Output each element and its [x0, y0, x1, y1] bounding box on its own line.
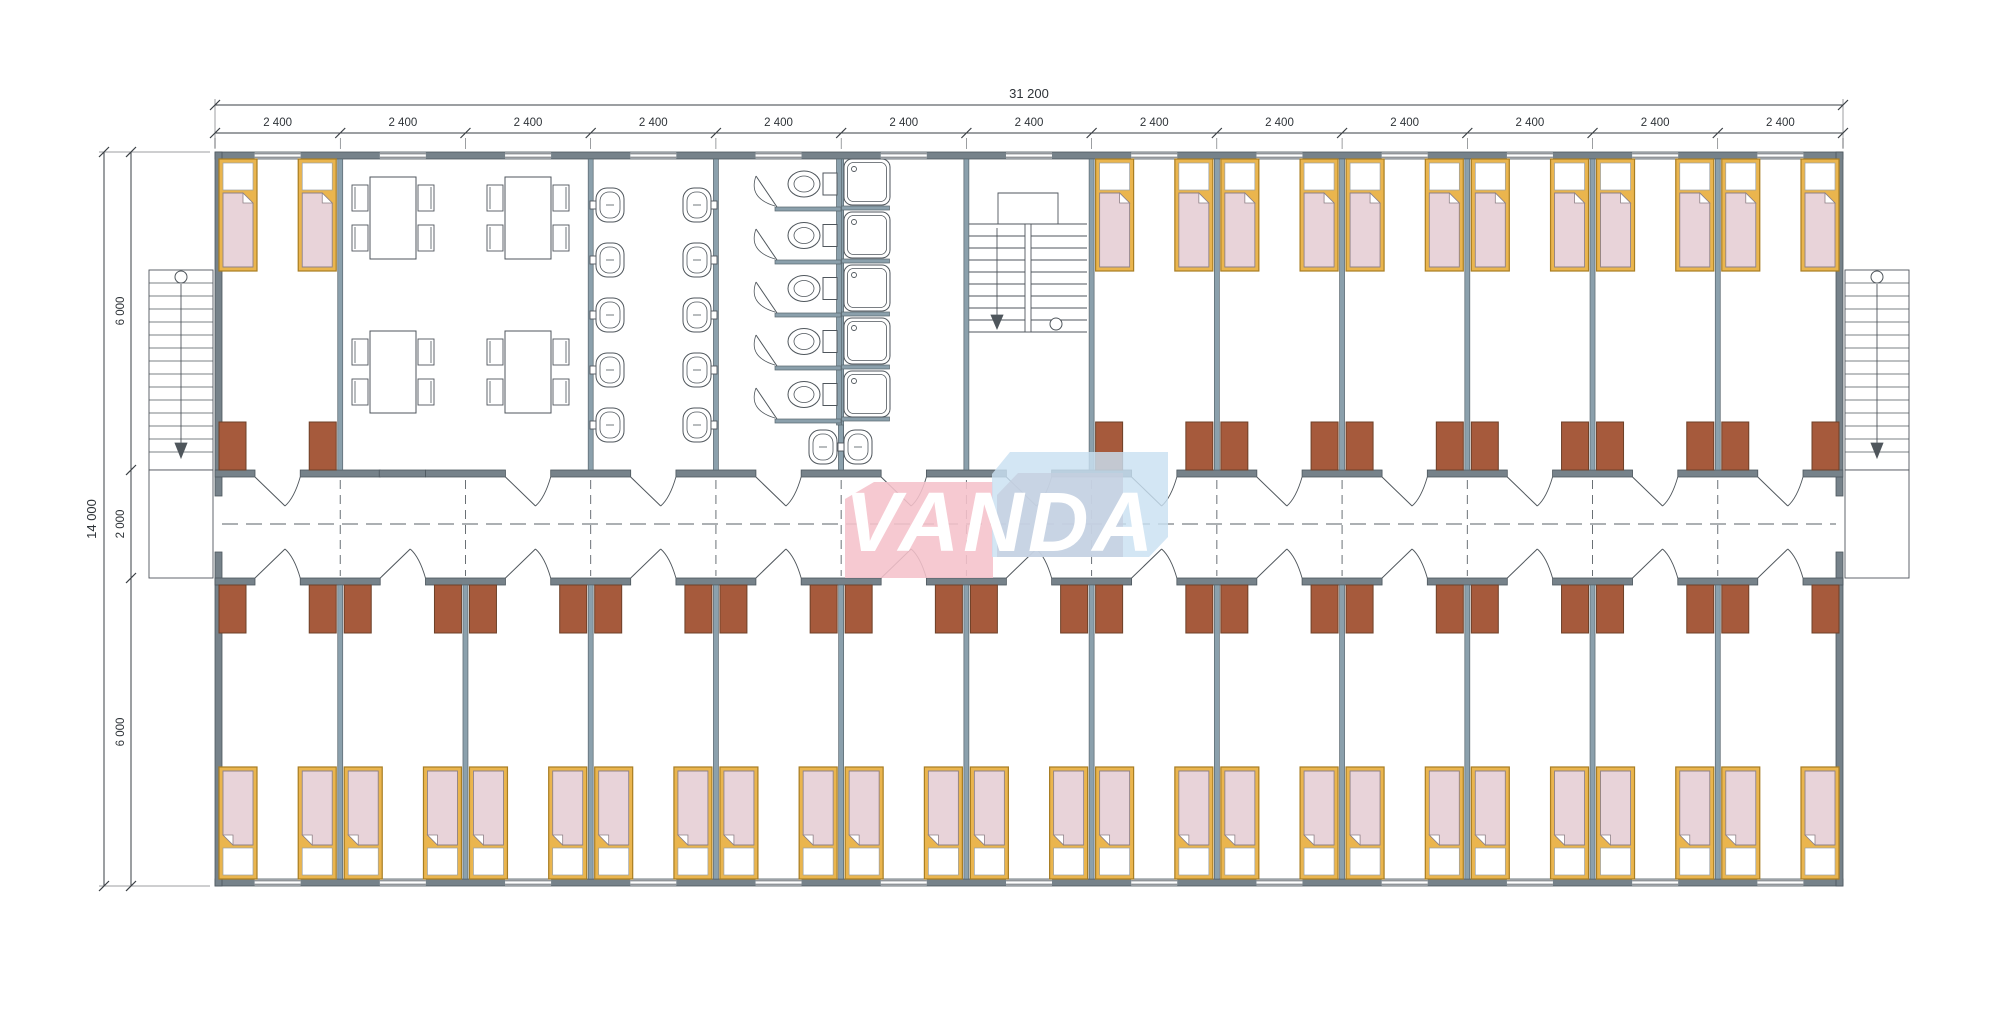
- stall-partition: [775, 366, 841, 370]
- nightstand: [309, 585, 336, 633]
- bed-blanket: [1726, 193, 1756, 267]
- dining-table-top: [370, 331, 416, 413]
- bed-pillow: [1100, 848, 1130, 875]
- corridor-wall: [1302, 578, 1382, 585]
- bed-pillow: [1805, 848, 1835, 875]
- bed-pillow: [1555, 163, 1585, 190]
- nightstand: [1562, 585, 1589, 633]
- toilet-bowl: [788, 382, 820, 408]
- door-swing: [285, 549, 300, 578]
- bed-blanket: [1225, 193, 1255, 267]
- door-swing: [1257, 549, 1287, 578]
- nightstand: [1311, 585, 1338, 633]
- bed: [970, 767, 1008, 879]
- nightstand: [1096, 585, 1123, 633]
- dining-table: [370, 177, 416, 259]
- shower-partition: [842, 259, 890, 263]
- dim-left-segment-label: 6 000: [115, 718, 127, 747]
- sink: [590, 353, 624, 387]
- bed: [1346, 159, 1384, 271]
- toilet: [788, 276, 837, 302]
- bed-pillow: [724, 848, 754, 875]
- sink-tap: [590, 256, 596, 264]
- door-swing: [754, 388, 775, 418]
- door-swing: [1382, 549, 1412, 578]
- corridor-wall: [1678, 578, 1758, 585]
- nightstand: [560, 585, 587, 633]
- shower-tray-inner: [848, 163, 887, 202]
- bed-blanket: [223, 193, 253, 267]
- corridor-wall: [1427, 578, 1507, 585]
- stall-partition: [775, 313, 841, 317]
- door-swing: [1663, 477, 1678, 506]
- partition-wall: [1465, 159, 1470, 470]
- corridor-wall: [379, 470, 425, 477]
- door-swing: [1788, 549, 1803, 578]
- door-swing: [754, 229, 775, 259]
- bed: [1801, 767, 1839, 879]
- door-swing: [754, 282, 775, 312]
- dim-left-segment-label: 6 000: [115, 297, 127, 326]
- bed-blanket: [1350, 193, 1380, 267]
- nightstand: [810, 585, 837, 633]
- door-swing: [535, 549, 550, 578]
- dining-table-top: [370, 177, 416, 259]
- sink: [683, 188, 717, 222]
- door-swing: [1633, 477, 1663, 506]
- nightstand: [595, 585, 622, 633]
- bed-blanket: [1555, 193, 1585, 267]
- door-swing: [1663, 549, 1678, 578]
- corridor-wall: [1803, 578, 1843, 585]
- sink-tap: [590, 421, 596, 429]
- bed: [1551, 767, 1589, 879]
- door-swing: [380, 549, 410, 578]
- bed-blanket: [1726, 771, 1756, 845]
- stair-outline: [998, 193, 1058, 224]
- dining-table: [505, 331, 551, 413]
- bed-blanket: [928, 771, 958, 845]
- bed: [1425, 767, 1463, 879]
- corridor-wall: [1427, 470, 1507, 477]
- shower-tray: [844, 265, 890, 311]
- bed: [1597, 767, 1635, 879]
- bed-pillow: [928, 848, 958, 875]
- bed-pillow: [1555, 848, 1585, 875]
- bed: [595, 767, 633, 879]
- shower-partition: [842, 417, 890, 421]
- toilet-bowl: [788, 223, 820, 249]
- shower-partition: [842, 206, 890, 210]
- bed-pillow: [473, 848, 503, 875]
- chair: [487, 225, 503, 251]
- bed-pillow: [1100, 163, 1130, 190]
- door-swing: [1788, 477, 1803, 506]
- shower-tray: [844, 318, 890, 364]
- stair-arrow: [991, 315, 1003, 329]
- bed-blanket: [1429, 771, 1459, 845]
- chair: [418, 379, 434, 405]
- bed-pillow: [1475, 848, 1505, 875]
- bed-blanket: [1475, 771, 1505, 845]
- dim-segment-label: 2 400: [1766, 117, 1795, 129]
- bed-pillow: [553, 848, 583, 875]
- corridor-wall: [676, 578, 756, 585]
- chair: [553, 185, 569, 211]
- chair: [352, 339, 368, 365]
- corridor-wall: [1052, 578, 1132, 585]
- bed: [298, 159, 336, 271]
- bed-blanket: [1601, 771, 1631, 845]
- partition-wall: [1340, 585, 1345, 879]
- bed-pillow: [1350, 163, 1380, 190]
- bed-blanket: [678, 771, 708, 845]
- logo-text: VANDA: [845, 475, 1157, 569]
- chair: [352, 185, 368, 211]
- partition-wall: [1715, 159, 1720, 470]
- bed-pillow: [974, 848, 1004, 875]
- bed-blanket: [803, 771, 833, 845]
- door-swing: [1287, 477, 1302, 506]
- dining-table: [505, 177, 551, 259]
- bed: [1346, 767, 1384, 879]
- dim-segment-label: 2 400: [388, 117, 417, 129]
- partition-wall: [839, 585, 844, 879]
- bed: [1801, 159, 1839, 271]
- door-swing: [786, 477, 801, 506]
- sink-tap: [711, 311, 717, 319]
- shower-partition: [842, 312, 890, 316]
- door-swing: [1257, 477, 1287, 506]
- bed: [1096, 767, 1134, 879]
- nightstand: [1562, 422, 1589, 470]
- corridor-wall: [300, 470, 380, 477]
- bed-pillow: [1304, 163, 1334, 190]
- sink: [683, 408, 717, 442]
- bed: [1425, 159, 1463, 271]
- sink: [683, 243, 717, 277]
- bed: [1722, 767, 1760, 879]
- bed: [1096, 159, 1134, 271]
- dining-table-top: [505, 331, 551, 413]
- chair: [352, 225, 368, 251]
- dim-segment-label: 2 400: [263, 117, 292, 129]
- partition-wall: [463, 585, 468, 879]
- corridor-wall: [1553, 578, 1633, 585]
- corridor-wall: [676, 470, 756, 477]
- corridor-wall: [1803, 470, 1843, 477]
- bed: [1221, 159, 1259, 271]
- sink: [590, 188, 624, 222]
- door-swing: [1537, 549, 1552, 578]
- nightstand: [1436, 585, 1463, 633]
- dim-left-segment-label: 2 000: [115, 510, 127, 539]
- door-swing: [1287, 549, 1302, 578]
- door-swing: [1507, 549, 1537, 578]
- chair: [487, 339, 503, 365]
- dining-table: [370, 331, 416, 413]
- bed: [219, 767, 257, 879]
- corridor-wall: [926, 578, 1006, 585]
- nightstand: [1346, 422, 1373, 470]
- toilet: [788, 329, 837, 355]
- stair-divider: [1025, 224, 1031, 332]
- bed-pillow: [223, 163, 253, 190]
- dim-segment-label: 2 400: [889, 117, 918, 129]
- corridor-wall: [1553, 470, 1633, 477]
- door-swing: [661, 549, 676, 578]
- staircase: [1845, 270, 1909, 578]
- partition-wall: [338, 585, 343, 879]
- nightstand: [344, 585, 371, 633]
- sink-tap: [838, 443, 844, 451]
- stair-newel: [175, 271, 187, 283]
- nightstand: [219, 422, 246, 470]
- nightstand: [845, 585, 872, 633]
- bed: [344, 767, 382, 879]
- bed-pillow: [348, 848, 378, 875]
- corridor-wall: [425, 470, 505, 477]
- partition-wall: [588, 585, 593, 879]
- bed-pillow: [427, 848, 457, 875]
- nightstand: [1471, 585, 1498, 633]
- shower-partition: [842, 365, 890, 369]
- sink: [590, 298, 624, 332]
- door-swing: [255, 549, 285, 578]
- sink-tap: [590, 311, 596, 319]
- bed: [845, 767, 883, 879]
- door-swing: [1537, 477, 1552, 506]
- bed: [1300, 767, 1338, 879]
- bed-pillow: [302, 163, 332, 190]
- corridor-wall: [425, 578, 505, 585]
- bed-blanket: [1601, 193, 1631, 267]
- partition-wall: [713, 585, 718, 879]
- bed-blanket: [1805, 193, 1835, 267]
- nightstand: [1597, 585, 1624, 633]
- dim-segment-label: 2 400: [1140, 117, 1169, 129]
- bed-blanket: [1475, 193, 1505, 267]
- stair-landing: [149, 470, 213, 578]
- stall-partition: [775, 419, 841, 423]
- bed: [1175, 767, 1213, 879]
- shower-tray-inner: [848, 216, 887, 255]
- chair: [487, 379, 503, 405]
- shower-tray: [844, 159, 890, 205]
- bed: [720, 767, 758, 879]
- stair-newel: [1871, 271, 1883, 283]
- door-swing: [661, 477, 676, 506]
- bed-pillow: [1429, 163, 1459, 190]
- partition-wall: [1089, 159, 1094, 470]
- door-swing: [756, 549, 786, 578]
- bed: [1221, 767, 1259, 879]
- nightstand: [1186, 422, 1213, 470]
- bed-blanket: [1304, 771, 1334, 845]
- door-swing: [754, 176, 775, 206]
- floor-plan-canvas: 2 4002 4002 4002 4002 4002 4002 4002 400…: [0, 0, 2000, 1032]
- nightstand: [469, 585, 496, 633]
- dim-segment-label: 2 400: [1516, 117, 1545, 129]
- nightstand: [1812, 422, 1839, 470]
- door-swing: [535, 477, 550, 506]
- door-swing: [255, 477, 285, 506]
- sink-tap: [711, 201, 717, 209]
- corridor-wall: [215, 578, 255, 585]
- corridor-wall: [551, 470, 631, 477]
- chair: [418, 225, 434, 251]
- chair: [553, 339, 569, 365]
- sink-tap: [590, 366, 596, 374]
- chair: [352, 379, 368, 405]
- bed: [924, 767, 962, 879]
- bed: [1597, 159, 1635, 271]
- partition-wall: [1590, 585, 1595, 879]
- bed: [674, 767, 712, 879]
- bed: [219, 159, 257, 271]
- corridor-wall: [1678, 470, 1758, 477]
- door-swing: [1412, 549, 1427, 578]
- dim-segment-label: 2 400: [1015, 117, 1044, 129]
- bed-pillow: [1179, 163, 1209, 190]
- bed-pillow: [1680, 163, 1710, 190]
- bed-blanket: [1680, 771, 1710, 845]
- shower-tray-inner: [848, 269, 887, 308]
- nightstand: [1471, 422, 1498, 470]
- bed-pillow: [1726, 163, 1756, 190]
- bed-pillow: [1601, 848, 1631, 875]
- door-swing: [1507, 477, 1537, 506]
- nightstand: [434, 585, 461, 633]
- staircase: [149, 270, 213, 578]
- door-swing: [756, 477, 786, 506]
- bed-blanket: [724, 771, 754, 845]
- nightstand: [1812, 585, 1839, 633]
- nightstand: [935, 585, 962, 633]
- door-swing: [754, 335, 775, 365]
- sink: [683, 353, 717, 387]
- door-swing: [1758, 477, 1788, 506]
- corridor-wall: [215, 470, 255, 477]
- sink-tap: [711, 366, 717, 374]
- corridor-wall: [1177, 578, 1257, 585]
- nightstand: [1221, 585, 1248, 633]
- dim-segment-label: 2 400: [1265, 117, 1294, 129]
- stair-landing: [1845, 470, 1909, 578]
- bed: [549, 767, 587, 879]
- partition-wall: [964, 159, 969, 470]
- nightstand: [309, 422, 336, 470]
- bed-pillow: [1475, 163, 1505, 190]
- toilet-tank: [823, 173, 837, 195]
- shower-tray-inner: [848, 375, 887, 414]
- bed: [1175, 159, 1213, 271]
- bed-blanket: [1680, 193, 1710, 267]
- bed-blanket: [427, 771, 457, 845]
- nightstand: [720, 585, 747, 633]
- bed-blanket: [223, 771, 253, 845]
- partition-wall: [1214, 585, 1219, 879]
- bed-blanket: [473, 771, 503, 845]
- bed-blanket: [1100, 193, 1130, 267]
- dim-segment-label: 2 400: [639, 117, 668, 129]
- chair: [418, 339, 434, 365]
- corridor-wall: [801, 578, 881, 585]
- bed-blanket: [1100, 771, 1130, 845]
- bed-blanket: [599, 771, 629, 845]
- door-swing: [1382, 477, 1412, 506]
- bed-blanket: [1304, 193, 1334, 267]
- sink: [683, 298, 717, 332]
- bed-pillow: [223, 848, 253, 875]
- chair: [487, 185, 503, 211]
- door-swing: [786, 549, 801, 578]
- chair: [418, 185, 434, 211]
- partition-wall: [1465, 585, 1470, 879]
- partition-wall: [338, 159, 343, 470]
- toilet-tank: [823, 278, 837, 300]
- chair: [553, 225, 569, 251]
- bed-pillow: [1304, 848, 1334, 875]
- shower-tray: [844, 371, 890, 417]
- nightstand: [1221, 422, 1248, 470]
- chair: [553, 379, 569, 405]
- toilet-tank: [823, 384, 837, 406]
- dim-segment-label: 2 400: [514, 117, 543, 129]
- bed-blanket: [849, 771, 879, 845]
- bed: [799, 767, 837, 879]
- floor-plan-drawing: 2 4002 4002 4002 4002 4002 4002 4002 400…: [0, 0, 2000, 1032]
- nightstand: [1061, 585, 1088, 633]
- bed-pillow: [849, 848, 879, 875]
- sink-tap: [711, 421, 717, 429]
- toilet: [788, 171, 837, 197]
- bed: [423, 767, 461, 879]
- stair-newel: [1050, 318, 1062, 330]
- bed-blanket: [974, 771, 1004, 845]
- bed-blanket: [1054, 771, 1084, 845]
- bed: [298, 767, 336, 879]
- bed-pillow: [1225, 163, 1255, 190]
- bed: [1551, 159, 1589, 271]
- bed-blanket: [302, 193, 332, 267]
- bed: [469, 767, 507, 879]
- bed-pillow: [1601, 163, 1631, 190]
- bed-blanket: [553, 771, 583, 845]
- bed-blanket: [302, 771, 332, 845]
- dim-segment-label: 2 400: [1390, 117, 1419, 129]
- bed: [1471, 159, 1509, 271]
- bed-pillow: [1726, 848, 1756, 875]
- nightstand: [1687, 585, 1714, 633]
- bed-blanket: [1350, 771, 1380, 845]
- sink-tap: [590, 201, 596, 209]
- partition-wall: [1214, 159, 1219, 470]
- dim-left-total: 14 000: [84, 499, 99, 539]
- dim-segment-label: 2 400: [764, 117, 793, 129]
- bed: [1300, 159, 1338, 271]
- door-swing: [631, 477, 661, 506]
- nightstand: [1597, 422, 1624, 470]
- nightstand: [685, 585, 712, 633]
- bed-pillow: [803, 848, 833, 875]
- door-swing: [1162, 549, 1177, 578]
- nightstand: [1436, 422, 1463, 470]
- bed-blanket: [1179, 193, 1209, 267]
- corridor-wall: [300, 578, 380, 585]
- partition-wall: [1590, 159, 1595, 470]
- bed-pillow: [302, 848, 332, 875]
